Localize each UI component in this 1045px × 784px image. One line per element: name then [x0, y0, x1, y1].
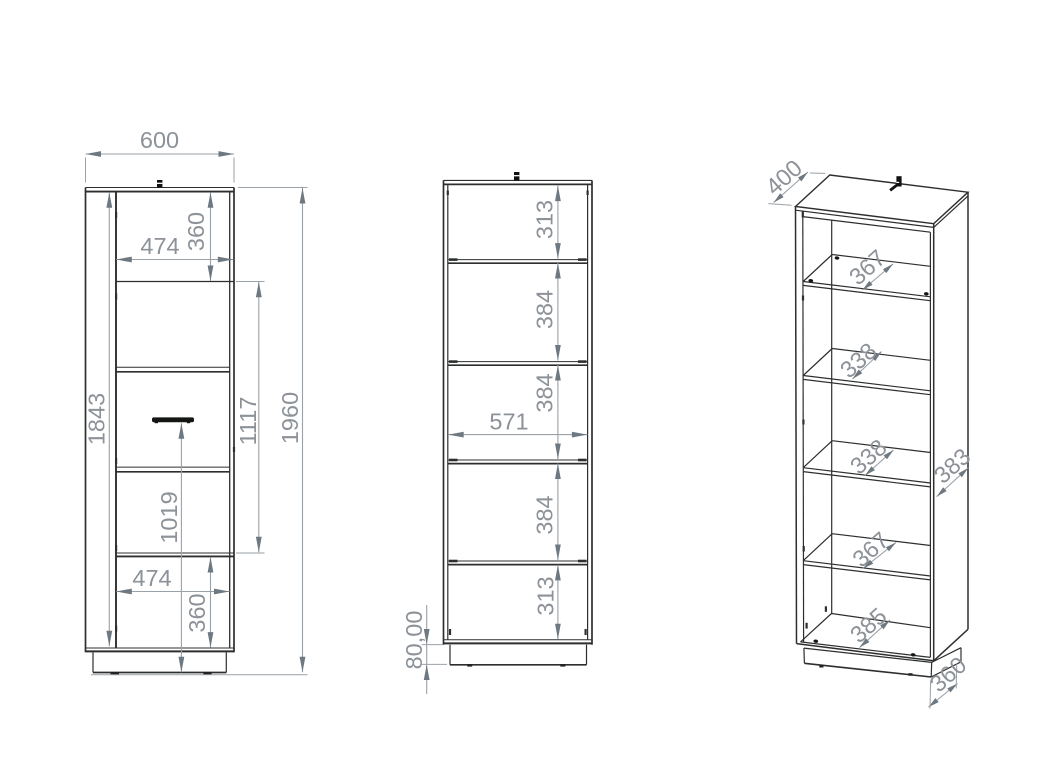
svg-text:384: 384 [532, 373, 558, 412]
svg-text:80,00: 80,00 [401, 611, 427, 670]
svg-text:474: 474 [132, 565, 171, 591]
svg-text:360: 360 [184, 593, 210, 632]
svg-text:313: 313 [533, 576, 559, 615]
svg-text:360: 360 [183, 212, 209, 251]
svg-text:474: 474 [140, 233, 179, 259]
svg-text:1843: 1843 [84, 393, 110, 445]
svg-text:384: 384 [532, 495, 558, 534]
svg-text:384: 384 [532, 290, 558, 329]
svg-text:600: 600 [140, 127, 179, 153]
svg-text:571: 571 [489, 409, 528, 435]
svg-text:1960: 1960 [277, 392, 303, 444]
svg-text:1019: 1019 [156, 491, 182, 543]
svg-text:1117: 1117 [235, 397, 261, 446]
svg-text:313: 313 [532, 200, 558, 239]
